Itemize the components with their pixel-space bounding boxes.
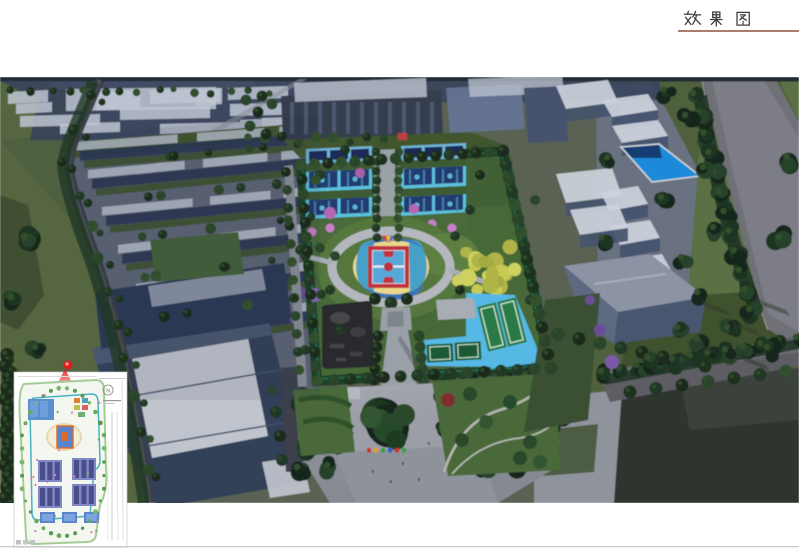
svg-text:N: N [106, 389, 110, 395]
